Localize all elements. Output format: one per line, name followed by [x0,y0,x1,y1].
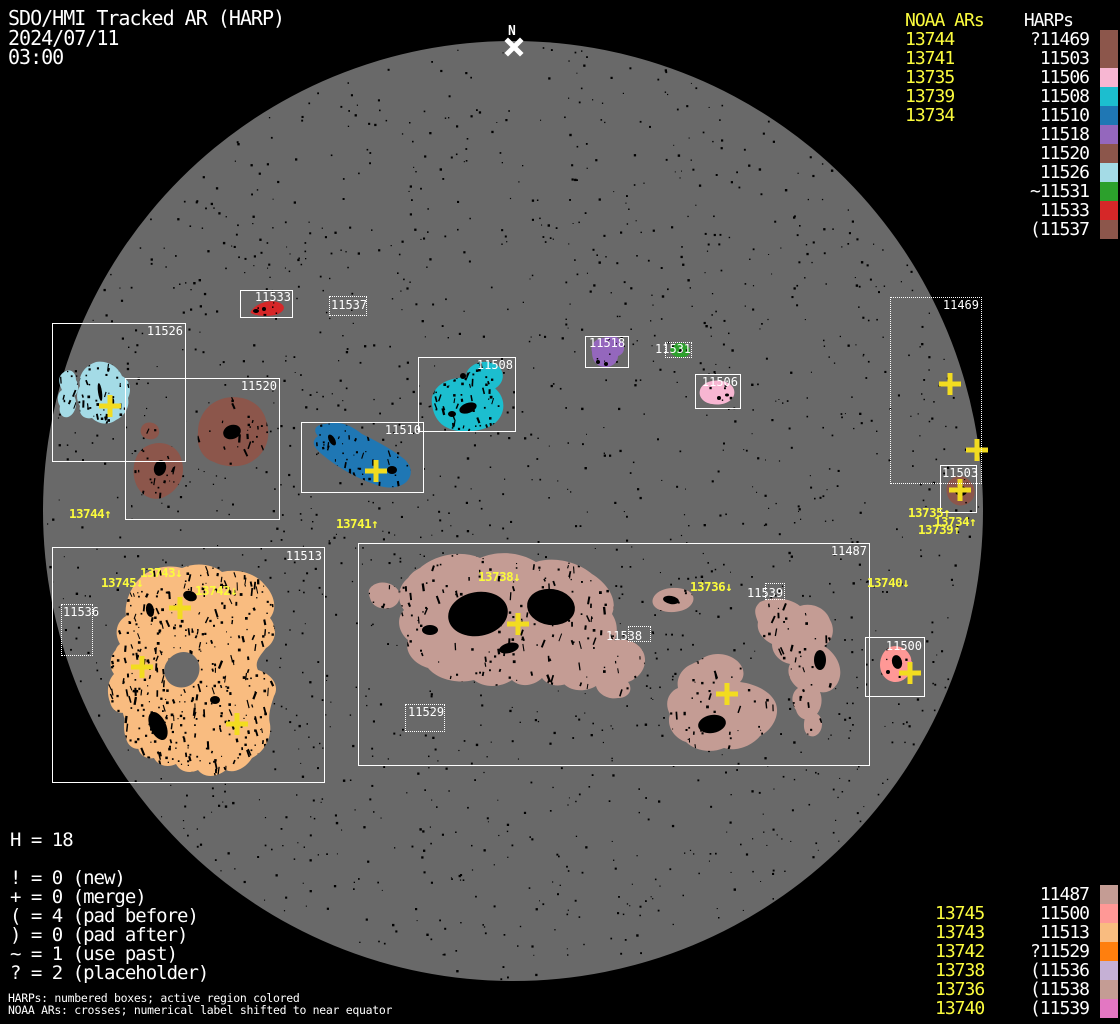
legend-harp-header: HARPs [1024,11,1073,30]
legend-row: (11537 [902,220,1119,239]
legend-row: 11487 [902,885,1119,904]
noaa-label-13739: 13739↑ [918,523,960,536]
legend-row: 1374511500 [902,904,1119,923]
harp-color-swatch [1100,163,1118,182]
harp-count: H = 18 [10,831,73,850]
harp-color-swatch [1100,87,1118,106]
harp-color-swatch [1100,961,1118,980]
harp-color-swatch [1100,49,1118,68]
harp-color-swatch [1100,68,1118,87]
harp-color-swatch [1100,999,1118,1018]
legend-row: 13744?11469 [902,30,1119,49]
harp-color-swatch [1100,144,1118,163]
footnote-noaa: NOAA ARs: crosses; numerical label shift… [8,1004,392,1016]
harp-color-swatch [1100,201,1118,220]
legend-top: NOAA ARs HARPs 13744?11469 1374111503 13… [902,11,1119,241]
harp-box-11487: 11487 [358,543,870,766]
noaa-label-13742: 13742↓ [195,584,237,597]
legend-row: 13736(11538 [902,980,1119,999]
legend-bottom: 11487 1374511500 1374311513 13742?11529 … [902,885,1119,1020]
harp-box-11536: 11536 [61,604,93,656]
legend-row: ~11531 [902,182,1119,201]
harp-box-11500: 11500 [865,637,925,697]
harp-color-swatch [1100,980,1118,999]
harp-color-swatch [1100,923,1118,942]
harp-color-swatch [1100,30,1118,49]
legend-row: 13742?11529 [902,942,1119,961]
harp-color-swatch [1100,904,1118,923]
harp-box-11510: 11510 [301,422,424,493]
harp-color-swatch [1100,125,1118,144]
legend-row: 13738(11536 [902,961,1119,980]
harp-box-11529: 11529 [405,704,445,732]
legend-row: 1373411510 [902,106,1119,125]
noaa-label-13738: 13738↓ [478,570,520,583]
legend-row: 1373511506 [902,68,1119,87]
noaa-label-13740: 13740↓ [867,576,909,589]
harp-color-swatch [1100,885,1118,904]
harp-box-11537: 11537 [329,296,367,316]
harp-box-11508: 11508 [418,357,516,432]
noaa-label-13743: 13743↓ [140,566,182,579]
harp-label-11538: 11538 [606,630,642,643]
harp-box-11533: 11533 [240,290,293,318]
north-label: N [508,24,516,39]
noaa-label-13736: 13736↓ [690,580,732,593]
harp-color-swatch [1100,220,1118,239]
legend-row: 11518 [902,125,1119,144]
legend-noaa-header: NOAA ARs [905,11,984,30]
harp-color-swatch [1100,182,1118,201]
legend-row: 11526 [902,163,1119,182]
harp-color-swatch [1100,106,1118,125]
noaa-label-13741: 13741↑ [336,517,378,530]
noaa-label-13745: 13745↓ [101,576,143,589]
harp-box-11506: 11506 [695,374,741,409]
harp-box-11513: 11513 [52,547,325,783]
time-label: 03:00 [8,48,63,67]
legend-row: 1374111503 [902,49,1119,68]
legend-row: 13740(11539 [902,999,1119,1018]
legend-row: 11533 [902,201,1119,220]
legend-row: 1373911508 [902,87,1119,106]
legend-row: 1374311513 [902,923,1119,942]
harp-color-swatch [1100,942,1118,961]
legend-row: 11520 [902,144,1119,163]
harp-label-11539: 11539 [747,587,783,600]
harp-plot: SDO/HMI Tracked AR (HARP) 2024/07/11 03:… [0,0,1120,1024]
harp-label-11531: 11531 [655,343,691,356]
noaa-label-13744: 13744↑ [69,507,111,520]
stat-placeholder: ? = 2 (placeholder) [10,964,208,983]
harp-box-11520: 11520 [125,378,280,520]
harp-box-11469: 11469 [890,297,982,484]
harp-box-11518: 11518 [585,336,629,368]
